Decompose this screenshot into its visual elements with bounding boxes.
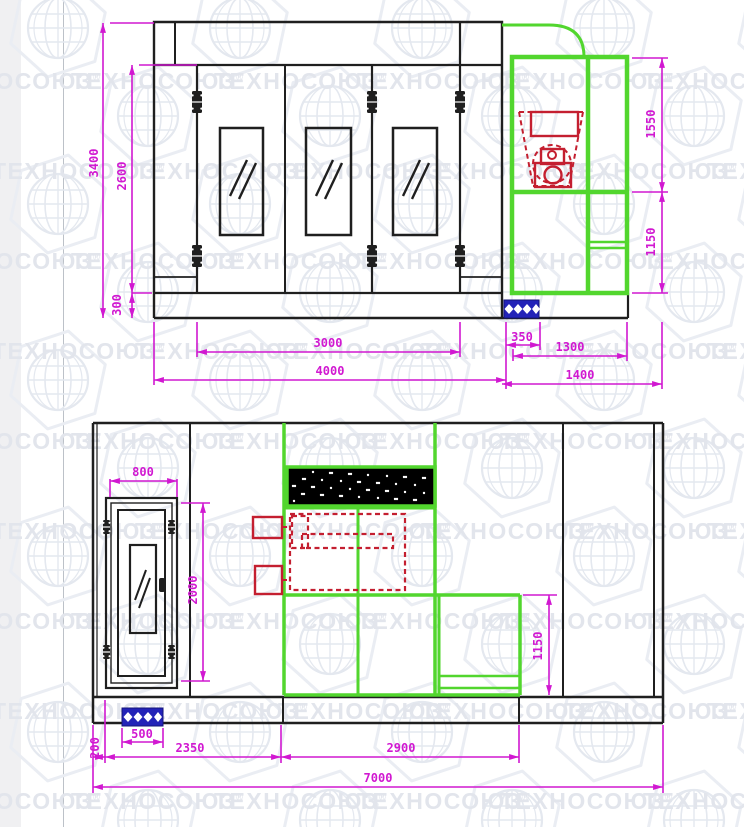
door2-glass-slash (316, 160, 333, 196)
hinge-icon (455, 91, 466, 113)
door2-window (306, 128, 351, 235)
duct-curve (502, 25, 584, 57)
hinge-icon (167, 645, 175, 659)
side-door (102, 498, 177, 688)
door3-window (393, 128, 437, 235)
speckle-dot (293, 500, 295, 502)
dim-label: 7000 (364, 771, 393, 785)
dim-door-width: 800 (110, 465, 177, 497)
hinge-icon (102, 645, 110, 659)
dim-unit-lower-height: 1150 (632, 192, 668, 293)
speckle-dot (422, 477, 424, 479)
speckle-dot (403, 476, 405, 478)
speckle-dot (395, 483, 397, 485)
dim-unit-upper-height: 1550 (632, 58, 668, 192)
dim-label: 1400 (566, 368, 595, 382)
fan-outlet (531, 112, 578, 136)
speckle-dot (413, 499, 415, 501)
speckle-dot (339, 495, 341, 497)
dim-label: 350 (511, 330, 533, 344)
dim-label: 3400 (87, 149, 101, 178)
dim-label: 4000 (316, 364, 345, 378)
dim-label: 1150 (644, 228, 658, 257)
hinge-icon (102, 520, 110, 534)
dim-label: 1150 (531, 632, 545, 661)
door-frame-outer (106, 498, 177, 688)
speckle-dot (311, 486, 313, 488)
exchanger-inlet-dashed (292, 516, 308, 548)
fan-assembly (519, 112, 583, 187)
hinge-icon (367, 91, 378, 113)
speckle-dot (377, 497, 379, 499)
door-handle (159, 578, 165, 592)
dim-front-inner-height: 2600 (115, 65, 197, 293)
hinge-icon (192, 245, 203, 267)
burner-box-2 (255, 566, 282, 594)
dim-side-pit-width: 500 (122, 727, 163, 748)
dim-unit-section-height: 1150 (523, 595, 557, 695)
dim-label: 200 (88, 737, 102, 759)
door1-glass-slash (230, 160, 247, 196)
door2-glass-slash (325, 163, 342, 199)
dim-label: 2600 (115, 162, 129, 191)
dim-label: 500 (131, 727, 153, 741)
motor-cap (548, 151, 556, 159)
dim-label: 1550 (644, 110, 658, 139)
motor-shaft (545, 167, 562, 184)
burner-box-1 (253, 517, 282, 538)
hinge-icon (167, 520, 175, 534)
dim-front-pit-width: 350 (506, 322, 540, 350)
hinge-icon (192, 91, 203, 113)
dim-label: 2350 (176, 741, 205, 755)
speckle-dot (357, 481, 359, 483)
speckle-dot (320, 494, 322, 496)
door-window (130, 545, 156, 633)
speckle-dot (358, 496, 360, 498)
dim-front-door-opening: 3000 (197, 322, 460, 357)
dim-front-booth-width: 4000 (154, 322, 506, 389)
filter-band (287, 467, 435, 506)
speckle-dot (340, 480, 342, 482)
speckle-dot (385, 490, 387, 492)
speckle-dot (301, 493, 303, 495)
pit-grate-side (122, 708, 163, 726)
dim-label: 1300 (556, 340, 585, 354)
speckle-dot (367, 474, 369, 476)
speckle-dot (394, 498, 396, 500)
door-leaf (118, 510, 165, 676)
dim-door-height: 2000 (181, 503, 210, 681)
dim-label: 800 (132, 465, 154, 479)
speckle-dot (312, 471, 314, 473)
exchanger-duct-dashed (302, 534, 393, 548)
door3-glass-slash (412, 163, 429, 199)
dim-mid-section: 2900 (281, 725, 519, 763)
door1-window (220, 128, 263, 235)
pit-grate-front (504, 300, 540, 318)
speckle-dot (348, 473, 350, 475)
hinge-icon (455, 245, 466, 267)
speckle-dot (292, 485, 294, 487)
speckle-dot (414, 484, 416, 486)
speckle-dot (376, 482, 378, 484)
side-view-drawing: 800 2000 500 200 (88, 423, 663, 793)
speckle-dot (330, 487, 332, 489)
heater-assembly (253, 514, 405, 594)
plenum-structure (284, 423, 520, 695)
speckle-dot (349, 488, 351, 490)
dim-front-base-height: 300 (110, 293, 132, 318)
dim-label: 2000 (186, 576, 200, 605)
speckle-dot (404, 491, 406, 493)
front-view-drawing: 3400 2600 300 3000 400 (87, 22, 668, 389)
speckle-dot (386, 475, 388, 477)
door-hinges (192, 91, 466, 267)
heat-exchanger-dashed (290, 514, 405, 590)
dim-label: 2900 (387, 741, 416, 755)
dim-total-length: 7000 (93, 725, 663, 793)
speckle-dot (321, 479, 323, 481)
page-root: ТЕХНОСОЮЗ®ТЕХНОСОЮЗ®ТЕХНОСОЮЗ®ТЕХНОСОЮЗ®… (0, 0, 744, 827)
hinge-icon (367, 245, 378, 267)
speckle-dot (329, 472, 331, 474)
speckle-dot (302, 478, 304, 480)
technical-drawing: 3400 2600 300 3000 400 (0, 0, 744, 827)
door-frame-mid (111, 503, 172, 683)
dim-plinth-offset: 200 (88, 700, 105, 793)
unit-frame (512, 57, 627, 293)
dim-label: 300 (110, 294, 124, 316)
dim-label: 3000 (314, 336, 343, 350)
speckle-dot (423, 492, 425, 494)
door1-glass-slash (239, 163, 256, 199)
door3-glass-slash (403, 160, 420, 196)
speckle-dot (366, 489, 368, 491)
